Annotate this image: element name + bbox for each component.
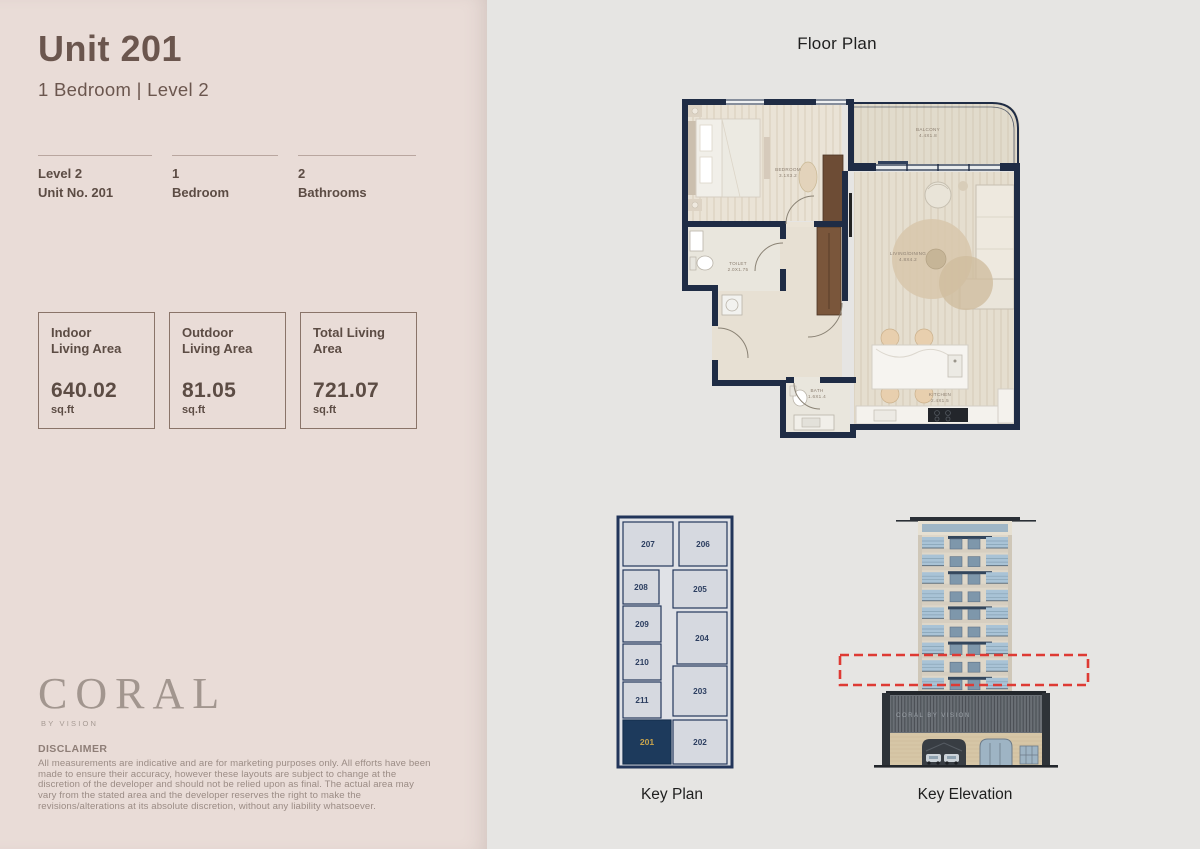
stat-line2: Unit No. 201 (38, 184, 152, 203)
unit-info-panel: Unit 201 1 Bedroom | Level 2 Level 2 Uni… (0, 0, 487, 849)
area-unit: sq.ft (313, 404, 416, 416)
stat-line1: 2 (298, 165, 416, 184)
key-plan-drawing: 207 208 209 210 211 201 206 205 204 203 … (615, 514, 735, 770)
area-value: 640.02 (51, 379, 154, 403)
stat-bedroom: 1 Bedroom (172, 155, 278, 203)
unit-subtitle: 1 Bedroom | Level 2 (38, 79, 209, 101)
area-value: 721.07 (313, 379, 416, 403)
area-unit: sq.ft (182, 404, 285, 416)
unit-number: 205 (693, 585, 707, 594)
page-title: Unit 201 (38, 28, 182, 70)
stat-line2: Bedroom (172, 184, 278, 203)
tv (849, 193, 852, 237)
side-table (958, 181, 968, 191)
armchair (925, 182, 951, 208)
key-elevation-caption: Key Elevation (885, 786, 1045, 804)
unit-stats: Level 2 Unit No. 201 1 Bedroom 2 Bathroo… (38, 155, 416, 203)
indoor-area-box: Indoor Living Area 640.02 sq.ft (38, 312, 155, 429)
floor-plan-drawing: BEDROOM3.1X3.2 BALCONY4.4X1.8 LIVING/DIN… (676, 93, 1030, 446)
unit-number: 206 (696, 540, 710, 549)
area-value: 81.05 (182, 379, 285, 403)
unit-number: 203 (693, 687, 707, 696)
area-boxes: Indoor Living Area 640.02 sq.ft Outdoor … (38, 312, 417, 429)
unit-number: 202 (693, 738, 707, 747)
unit-number: 210 (635, 658, 649, 667)
lamp (692, 202, 698, 208)
area-label: Total Living Area (313, 325, 416, 358)
key-elevation-drawing: CORAL BY VISION (830, 505, 1110, 795)
unit-number: 209 (635, 620, 649, 629)
stat-level-unit: Level 2 Unit No. 201 (38, 155, 152, 203)
stat-line2: Bathrooms (298, 184, 416, 203)
disclaimer-heading: DISCLAIMER (38, 743, 434, 755)
building-sign: CORAL BY VISION (896, 712, 971, 719)
area-label: Indoor Living Area (51, 325, 154, 358)
key-plan-caption: Key Plan (592, 786, 752, 804)
bench (799, 162, 817, 192)
total-area-box: Total Living Area 721.07 sq.ft (300, 312, 417, 429)
ground-line (874, 765, 1058, 768)
unit-number: 204 (695, 634, 709, 643)
wardrobe (823, 155, 843, 225)
disclaimer: DISCLAIMER All measurements are indicati… (38, 743, 434, 813)
room-label-bath: BATH1.6X1.4 (808, 388, 826, 399)
unit-number: 211 (635, 696, 649, 705)
coffee-table (926, 249, 946, 269)
unit-number: 207 (641, 540, 655, 549)
podium: CORAL BY VISION (874, 691, 1058, 768)
unit-number-highlighted: 201 (640, 737, 655, 747)
brochure-page: Unit 201 1 Bedroom | Level 2 Level 2 Uni… (0, 0, 1200, 849)
room-label-kitchen: KITCHEN2.4X1.5 (929, 392, 951, 403)
stat-line1: Level 2 (38, 165, 152, 184)
brand-name: CORAL (38, 672, 227, 716)
room-label-toilet: TOILET2.0X1.75 (728, 261, 749, 272)
stat-bathrooms: 2 Bathrooms (298, 155, 416, 203)
bed (688, 119, 770, 197)
room-label-balcony: BALCONY4.4X1.8 (916, 127, 940, 138)
area-unit: sq.ft (51, 404, 154, 416)
rug (939, 256, 993, 310)
lamp (692, 108, 698, 114)
disclaimer-body: All measurements are indicative and are … (38, 759, 434, 813)
plan-panel: Floor Plan (487, 0, 1200, 849)
outdoor-area-box: Outdoor Living Area 81.05 sq.ft (169, 312, 286, 429)
unit-number: 208 (634, 583, 648, 592)
area-label: Outdoor Living Area (182, 325, 285, 358)
stat-line1: 1 (172, 165, 278, 184)
floor-plan-title: Floor Plan (737, 34, 937, 54)
entrance-door (980, 739, 1012, 767)
brand-tagline: BY VISION (41, 719, 227, 728)
brand-logo: CORAL BY VISION (38, 672, 227, 728)
